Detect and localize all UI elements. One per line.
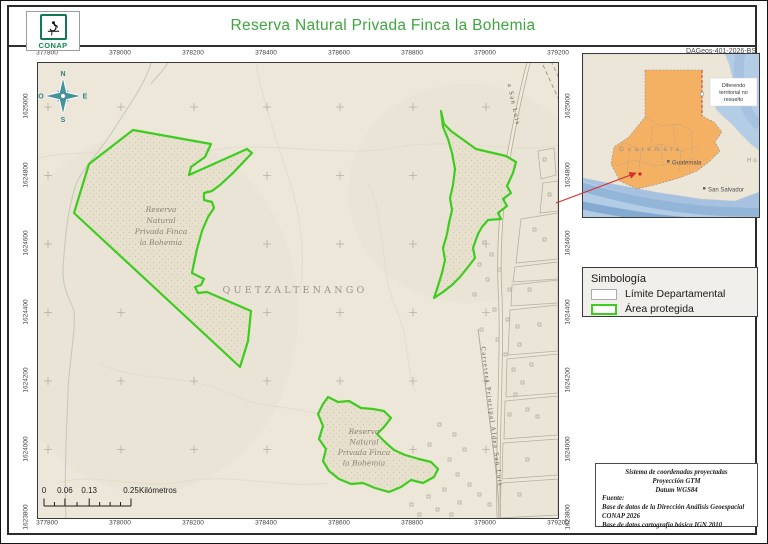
crs-line: Sistema de coordenadas proyectadas xyxy=(602,469,751,478)
svg-text:0.13: 0.13 xyxy=(81,486,97,495)
legend-item-label: Área protegida xyxy=(625,303,694,315)
svg-text:0.06: 0.06 xyxy=(57,486,73,495)
coordinate-label-y-right: 1625000 xyxy=(565,93,572,118)
compass-south: S xyxy=(61,117,66,124)
title-bar: Reserva Natural Privada Finca la Bohemia xyxy=(9,7,757,47)
coordinate-label-x-bottom: 379000 xyxy=(474,520,496,527)
document-code: DAGeos-401-2026-BS xyxy=(686,48,756,55)
coordinate-label-y-right: 1623800 xyxy=(565,504,572,529)
main-map: Reserva Natural Privada Finca la Bohemia… xyxy=(37,62,559,519)
inset-canvas: Diferendo territorial no resuelto G u a … xyxy=(583,54,759,217)
svg-text:resuelto: resuelto xyxy=(724,97,743,103)
coordinate-label-y-left: 1624400 xyxy=(23,299,30,324)
compass-north: N xyxy=(60,71,65,78)
legend-item-department: Límite Departamental xyxy=(591,288,749,300)
svg-text:la Bohemia: la Bohemia xyxy=(343,459,386,468)
coordinate-label-x-top: 378600 xyxy=(328,49,350,56)
legend: Simbología Límite Departamental Área pro… xyxy=(582,267,758,317)
coordinate-label-x-bottom: 378400 xyxy=(255,520,277,527)
coordinate-label-x-top: 379000 xyxy=(474,49,496,56)
country-label: G u a t e m a l a xyxy=(619,146,680,153)
note-anchor xyxy=(700,92,704,96)
compass-rose-icon: N E S O xyxy=(38,71,87,124)
svg-text:Privada Finca: Privada Finca xyxy=(337,448,391,457)
coordinate-label-y-right: 1624600 xyxy=(565,230,572,255)
coordinate-label-x-bottom: 378600 xyxy=(328,520,350,527)
crs-line: Proyección GTM xyxy=(602,478,751,487)
legend-title: Simbología xyxy=(591,273,749,285)
coordinate-label-y-right: 1624200 xyxy=(565,367,572,392)
coordinate-label-x-top: 378000 xyxy=(109,49,131,56)
city-label: San Salvador xyxy=(708,188,744,194)
coordinate-label-y-left: 1624000 xyxy=(23,436,30,461)
neighbor-label: H o xyxy=(747,157,757,164)
inset-map: Diferendo territorial no resuelto G u a … xyxy=(582,53,760,218)
coordinate-label-y-right: 1624800 xyxy=(565,162,572,187)
svg-text:0: 0 xyxy=(42,486,47,495)
coordinate-label-y-left: 1624800 xyxy=(23,162,30,187)
department-label: QUETZALTENANGO xyxy=(223,285,368,296)
conap-logo: CONAP xyxy=(26,11,80,51)
capital-marker xyxy=(667,160,670,163)
source-line: CONAP 2026 xyxy=(602,513,751,522)
svg-text:Natural: Natural xyxy=(145,216,176,225)
legend-item-label: Límite Departamental xyxy=(625,288,725,300)
scale-bar: 0 0.06 0.13 0.25 Kilómetros xyxy=(42,486,177,506)
coordinate-label-y-left: 1624600 xyxy=(23,230,30,255)
coordinate-label-y-right: 1624400 xyxy=(565,299,572,324)
svg-text:la Bohemia: la Bohemia xyxy=(140,238,183,247)
coordinate-label-x-bottom: 378000 xyxy=(109,520,131,527)
svg-text:0.25: 0.25 xyxy=(123,486,139,495)
legend-item-protected: Área protegida xyxy=(591,303,749,315)
credits-box: Sistema de coordenadas proyectadas Proye… xyxy=(595,463,758,527)
capital-label: Guatemala xyxy=(672,161,702,167)
coordinate-label-x-top: 379200 xyxy=(547,49,569,56)
coordinate-label-x-top: 378400 xyxy=(255,49,277,56)
svg-text:Reserva: Reserva xyxy=(348,427,380,436)
scale-ruler xyxy=(44,499,131,507)
compass-east: E xyxy=(83,94,88,101)
coordinate-label-y-right: 1624000 xyxy=(565,436,572,461)
svg-text:territorial no: territorial no xyxy=(719,90,747,96)
coordinate-label-x-bottom: 378800 xyxy=(401,520,423,527)
source-heading: Fuente: xyxy=(602,495,751,504)
coordinate-label-x-top: 378200 xyxy=(182,49,204,56)
location-dot xyxy=(638,172,641,175)
svg-text:Natural: Natural xyxy=(348,438,379,447)
coordinate-label-x-bottom: 378200 xyxy=(182,520,204,527)
coordinate-label-y-left: 1623800 xyxy=(23,504,30,529)
crs-line: Datum WGS84 xyxy=(602,487,751,496)
logo-label: CONAP xyxy=(38,41,67,50)
compass-west: O xyxy=(38,94,44,101)
coordinate-label-y-left: 1625000 xyxy=(23,93,30,118)
coordinate-label-y-left: 1624200 xyxy=(23,367,30,392)
quetzal-icon xyxy=(40,14,67,40)
map-canvas: Reserva Natural Privada Finca la Bohemia… xyxy=(38,63,558,518)
department-swatch-icon xyxy=(591,289,617,300)
svg-text:Privada Finca: Privada Finca xyxy=(134,227,188,236)
protected-swatch-icon xyxy=(591,304,617,315)
city-marker xyxy=(703,187,706,190)
svg-text:Diferendo: Diferendo xyxy=(722,83,745,89)
territorial-note: Diferendo territorial no resuelto xyxy=(710,78,757,106)
source-line: Base de datos cartografía básica IGN 201… xyxy=(602,522,751,531)
coordinate-label-x-bottom: 377800 xyxy=(36,520,58,527)
source-line: Base de datos de la Dirección Análisis G… xyxy=(602,504,751,513)
coordinate-label-x-top: 378800 xyxy=(401,49,423,56)
svg-text:Reserva: Reserva xyxy=(145,205,177,214)
page-title: Reserva Natural Privada Finca la Bohemia xyxy=(9,7,757,45)
svg-text:Kilómetros: Kilómetros xyxy=(139,486,177,495)
